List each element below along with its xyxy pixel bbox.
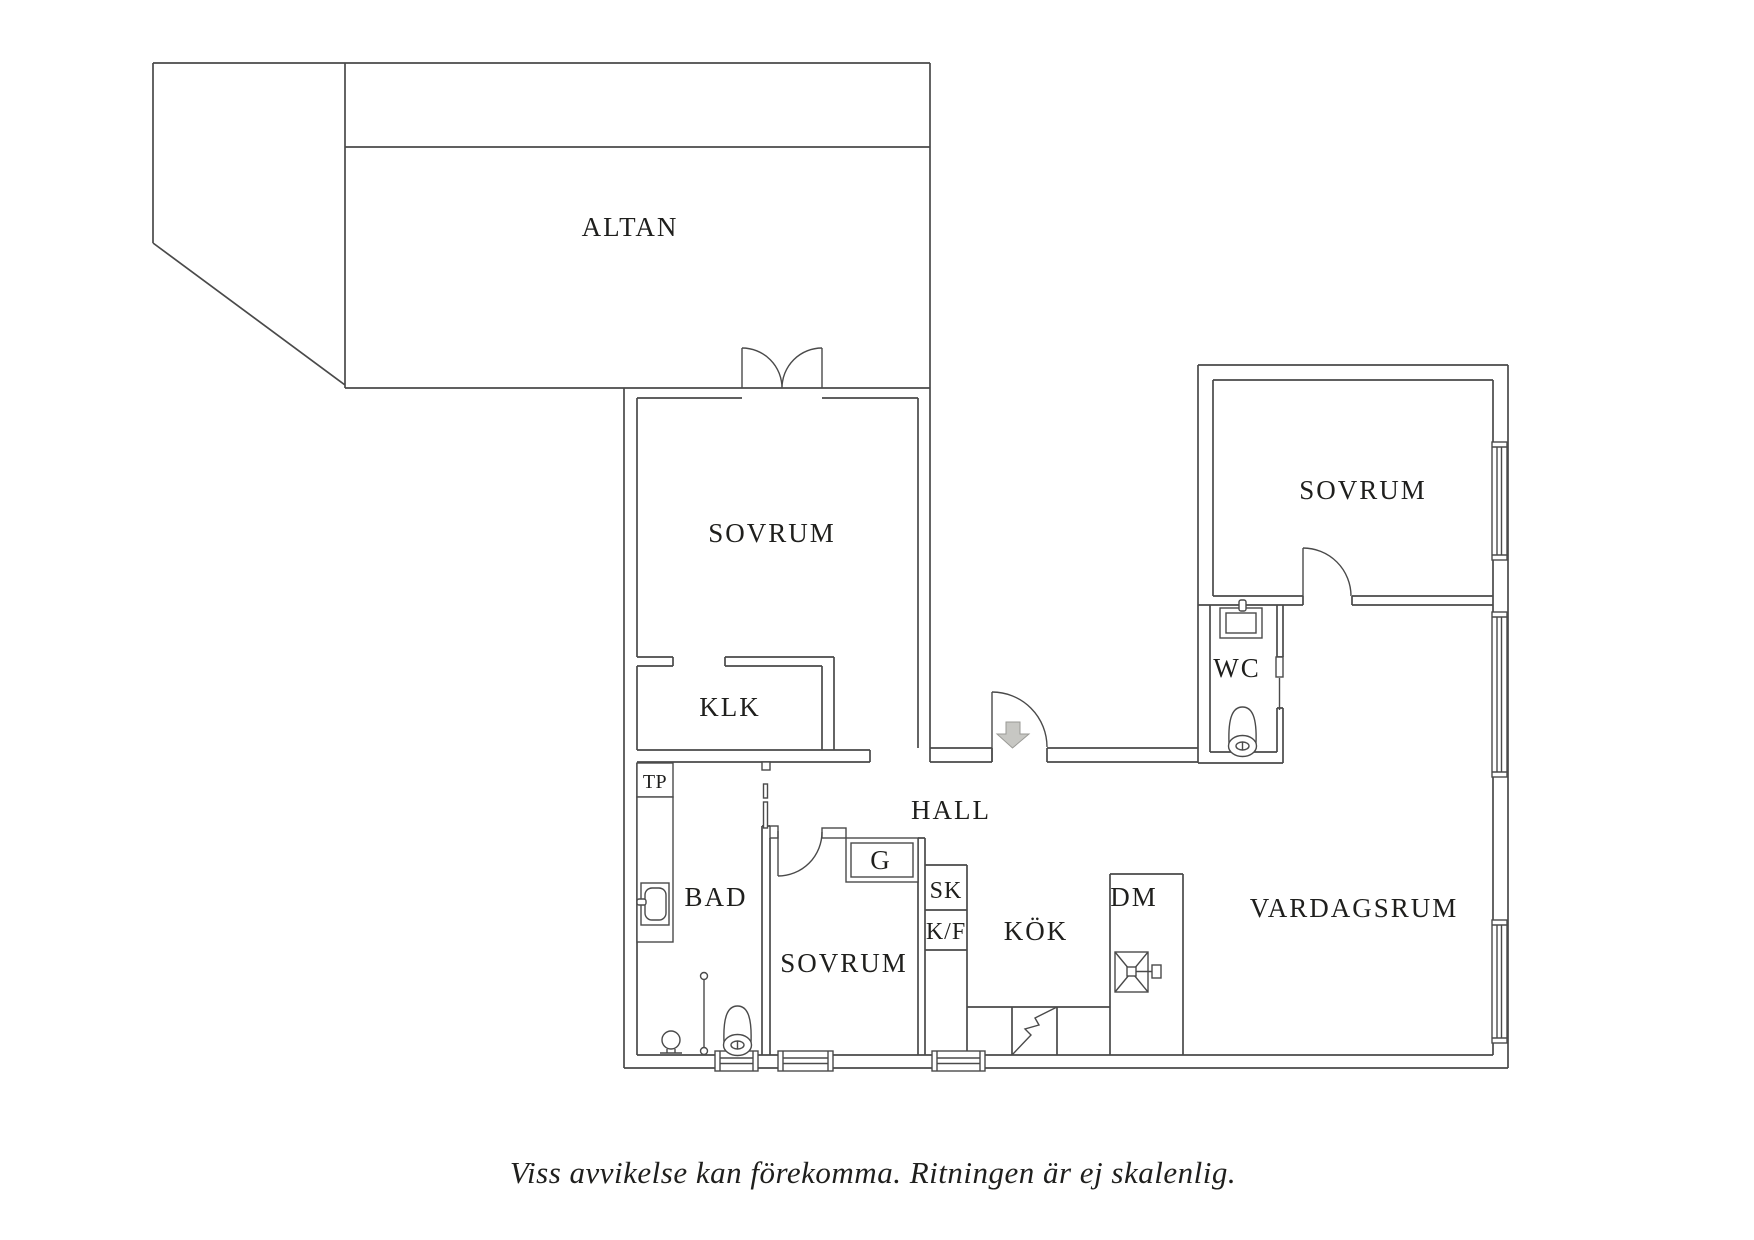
room-label-vardagsrum: VARDAGSRUM (1250, 893, 1459, 923)
toilet-icon (1229, 707, 1257, 757)
right-bedroom-door-icon (1303, 548, 1351, 596)
room-label-klk: KLK (699, 692, 761, 722)
window-icon (1492, 612, 1507, 777)
labels: ALTAN SOVRUM KLK TP BAD SOVRUM G SK K/F … (582, 212, 1459, 978)
room-label-dm: DM (1110, 882, 1158, 912)
stove-icon (1012, 1007, 1057, 1055)
window-icon (778, 1051, 833, 1071)
room-label-g: G (870, 845, 892, 875)
entry-arrow-icon (997, 722, 1029, 748)
shower-icon (660, 973, 708, 1055)
floorplan-page: ALTAN SOVRUM KLK TP BAD SOVRUM G SK K/F … (0, 0, 1754, 1240)
altan-double-door-icon (742, 348, 822, 388)
room-label-altan: ALTAN (582, 212, 679, 242)
room-label-kok: KÖK (1004, 916, 1069, 946)
room-label-tp: TP (643, 771, 667, 793)
hall-walls (930, 748, 1198, 762)
mid-bedroom-door-icon (770, 826, 846, 876)
floorplan-drawing: ALTAN SOVRUM KLK TP BAD SOVRUM G SK K/F … (0, 0, 1754, 1240)
window-icon (932, 1051, 985, 1071)
room-label-sk: SK (930, 878, 963, 904)
room-label-bad: BAD (684, 882, 747, 912)
room-label-wc: WC (1213, 653, 1261, 683)
disclaimer-caption: Viss avvikelse kan förekomma. Ritningen … (510, 1155, 1236, 1190)
room-label-sovrum-right: SOVRUM (1299, 475, 1427, 505)
toilet-icon (724, 1006, 752, 1056)
bad-sink-icon (637, 883, 669, 925)
fixtures (637, 600, 1262, 1056)
wc-sliding-door-icon (1276, 657, 1283, 710)
room-label-hall: HALL (911, 795, 991, 825)
room-label-sovrum-left: SOVRUM (708, 518, 836, 548)
room-label-sovrum-mid: SOVRUM (780, 948, 908, 978)
window-icon (1492, 442, 1507, 560)
bad-pocket-door-icon (762, 762, 770, 828)
room-label-kf: K/F (926, 919, 966, 945)
window-icon (1492, 920, 1507, 1043)
kitchen-sink-icon (1115, 952, 1161, 992)
altan-outline (153, 63, 930, 388)
